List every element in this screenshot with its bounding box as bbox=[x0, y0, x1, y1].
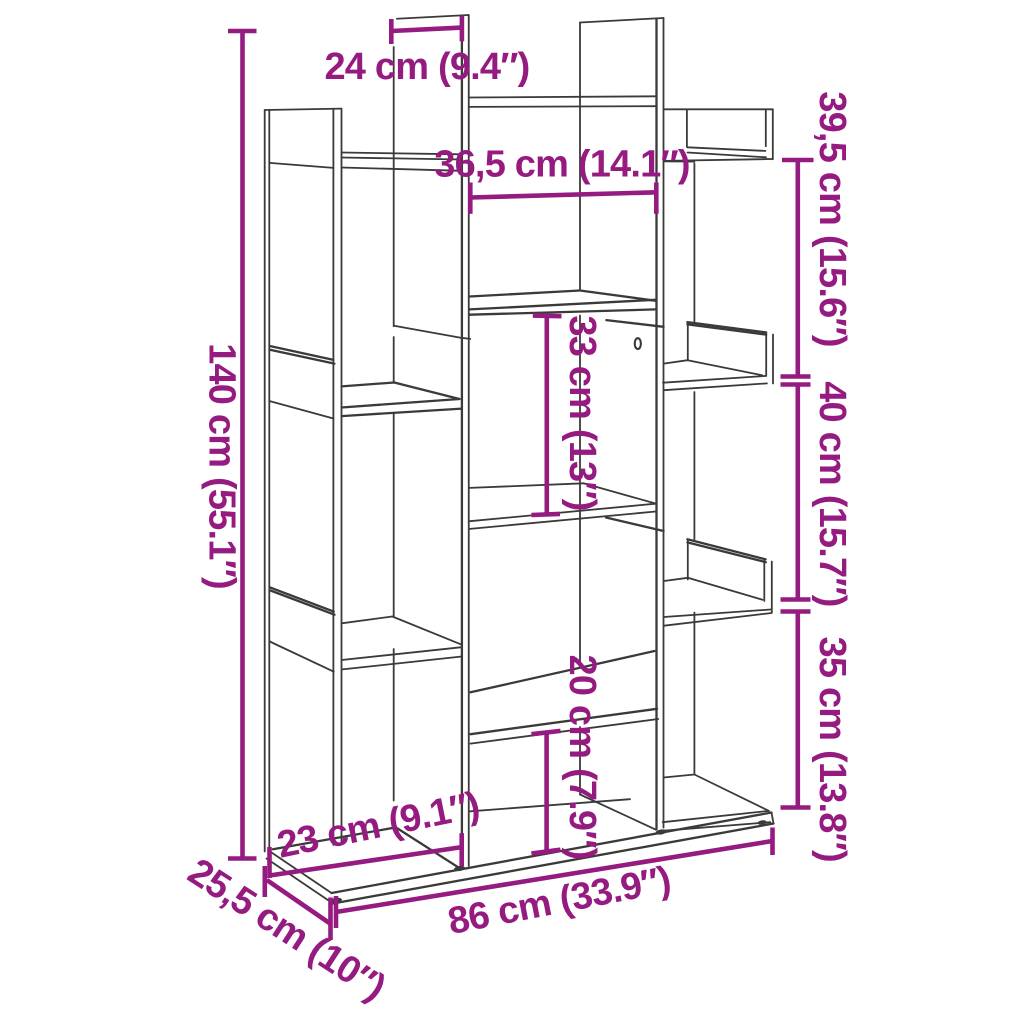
svg-text:36,5 cm (14.1″): 36,5 cm (14.1″) bbox=[434, 144, 689, 186]
svg-text:23 cm (9.1″): 23 cm (9.1″) bbox=[274, 784, 483, 866]
svg-text:33 cm (13″): 33 cm (13″) bbox=[561, 315, 603, 510]
svg-text:40 cm (15.7″): 40 cm (15.7″) bbox=[811, 381, 853, 606]
svg-text:20 cm (7.9″): 20 cm (7.9″) bbox=[561, 654, 603, 859]
svg-text:39,5 cm (15.6″): 39,5 cm (15.6″) bbox=[811, 91, 853, 346]
svg-text:86 cm (33.9″): 86 cm (33.9″) bbox=[445, 859, 674, 943]
svg-text:140 cm (55.1″): 140 cm (55.1″) bbox=[201, 343, 243, 589]
svg-text:35 cm (13.8″): 35 cm (13.8″) bbox=[811, 637, 853, 862]
svg-text:24 cm (9.4″): 24 cm (9.4″) bbox=[324, 46, 529, 88]
